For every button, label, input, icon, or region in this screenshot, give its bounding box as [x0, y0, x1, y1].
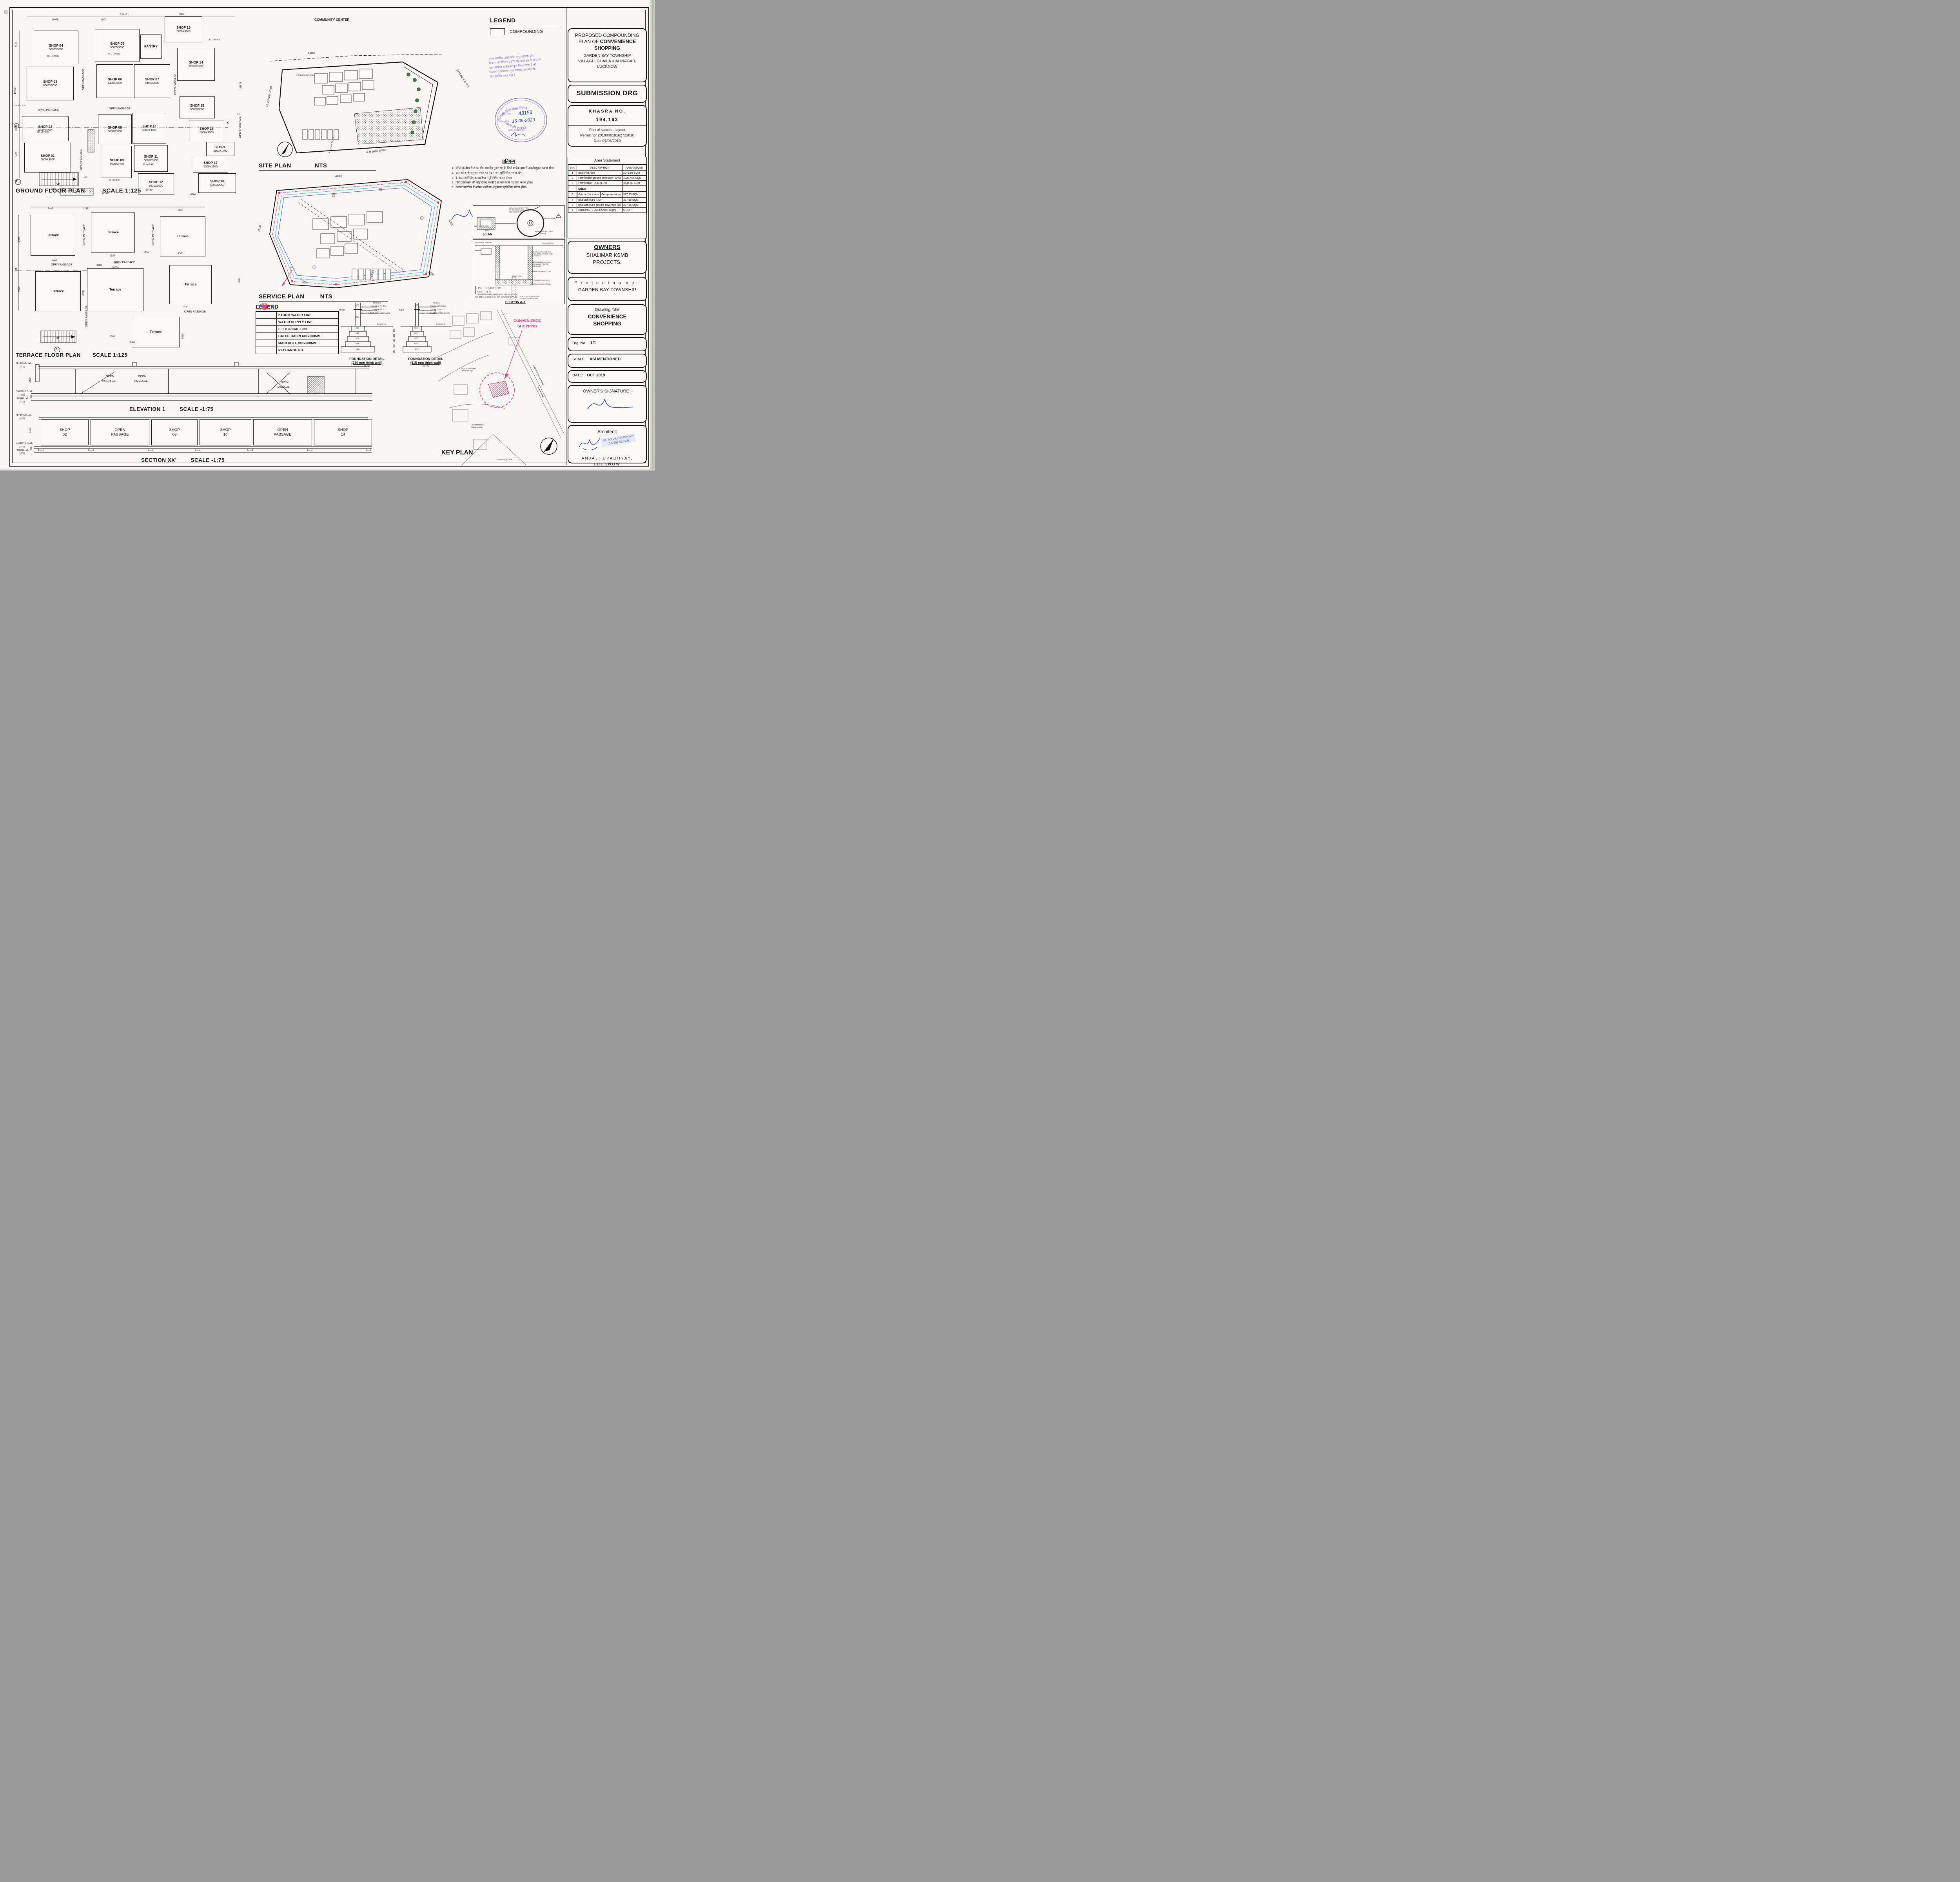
legend-label: ELECTRICAL LINE — [277, 327, 308, 331]
punch-hole — [4, 10, 8, 15]
terrace-geometry — [13, 205, 245, 352]
tb-submission: SUBMISSION DRG — [568, 85, 647, 103]
tb-owner-signature: OWNER'S SIGNATURE : — [568, 385, 647, 423]
plan-name: SITE PLAN — [259, 162, 291, 169]
tb-owners: OWNERS SHALIMAR KSMBPROJECTS. — [568, 241, 647, 274]
plan-name: SERVICE PLAN — [259, 293, 305, 300]
storm-symbol — [256, 312, 277, 318]
tb-khasra: KHASRA NO. 194,193 Part of sanction layo… — [568, 105, 647, 147]
plan-name: SECTION XX' — [141, 457, 176, 463]
scan-edge-bottom — [0, 468, 655, 470]
dia-table: DIAEFF. DEPTH (D)4.5 M.4.5 M. — [475, 286, 502, 294]
section-cell: SHOP14 — [314, 420, 372, 445]
foundation-detail-230: 230D.P.C.230Plinth Lvl.Flooring as Per S… — [339, 302, 394, 377]
section-cells: SHOP02OPENPASSAGESHOP08SHOP10OPENPASSAGE… — [41, 420, 372, 445]
plan-scale: SCALE -1:75 — [191, 457, 225, 463]
elevation-geometry — [16, 361, 380, 405]
tb-area-statement: Area StatementS.N.DESCRIPTIONAREA (SQM)1… — [568, 157, 647, 238]
drawing-sheet: SHOP 045000X3600SHOP 036000X3000SHOP 055… — [0, 0, 655, 470]
area-statement-table: Area StatementS.N.DESCRIPTIONAREA (SQM)1… — [568, 157, 646, 213]
scan-edge — [650, 0, 655, 470]
submission-label: SUBMISSION DRG — [568, 85, 646, 97]
legend-row-rp: RECHARGE PIT — [256, 347, 338, 354]
plan-scale: NTS — [315, 162, 327, 169]
note-item-3: 3.रेनवाटर हार्वेस्टिंग का प्राविधान सुनि… — [452, 176, 566, 180]
foundation-step-dims: 150—150—150—150—150 — [394, 329, 396, 353]
ground-floor-plan-title: GROUND FLOOR PLAN SCALE 1:125 — [16, 187, 141, 194]
titleblock-divider — [566, 7, 566, 465]
water-symbol — [256, 319, 277, 325]
drawing-title-value: CONVENIENCESHOPPING — [568, 313, 646, 327]
section-xx: SHOP02OPENPASSAGESHOP08SHOP10OPENPASSAGE… — [16, 414, 380, 456]
legend-label: RECHARGE PIT — [277, 349, 303, 352]
khasra-value: 194,193 — [568, 117, 646, 122]
legend-row-elec: ELECTRICAL LINE — [256, 325, 338, 332]
area-row: 7PARKING (1.25 ECS/100 SQM)5 UNIT — [568, 208, 646, 213]
area-col-header: DESCRIPTION — [577, 165, 622, 171]
approval-stamp: भवन मानचित्र उत्तर प्रदेश नगर योजना औरवि… — [488, 53, 542, 79]
stamp-permit-label: परमिट संख्या — [501, 113, 511, 115]
plan-scale: SCALE 1:125 — [102, 187, 141, 194]
mh-symbol — [256, 340, 277, 347]
legend-label: MAIN HOLE 900x800MM. — [277, 342, 318, 345]
legend-table: STORM WATER LINEWATER SUPPLY LINEELECTRI… — [256, 311, 339, 354]
restrictions-notes: प्रतिबन्ध 1.शॉप्स के बीच से 2.50 मी0 चकर… — [452, 158, 566, 191]
scale-value: AS/ MENTIONED — [590, 357, 621, 362]
legend-label: COMPOUNDING — [510, 29, 543, 34]
area-row: 1Total Plot Area2076.85 SQM — [568, 171, 646, 176]
stamp-officer: अधिशासी अभियन्ता — [508, 129, 524, 132]
foundation-230-title: FOUNDATION DETAIL (230 mm thick wall) N.… — [339, 357, 394, 368]
cb-symbol — [256, 333, 277, 340]
plan-scale: NTS — [320, 293, 333, 300]
legend-row-water: WATER SUPPLY LINE — [256, 318, 338, 325]
plan-name: TERRACE FLOOR PLAN — [16, 352, 81, 358]
stamp-date-label: स्वीकृत तिथि — [499, 121, 509, 123]
legend-row: COMPOUNDING — [490, 28, 561, 35]
area-row: 4Ground floor areaCompound Area377.15 SQ… — [568, 192, 646, 198]
section-cell: SHOP08 — [151, 420, 198, 445]
tb-architect: Architect: AR. ANJALI UPADHYAYCA/2017/81… — [568, 425, 647, 463]
date-label: DATE: — [572, 373, 583, 378]
scale-label: SCALE: — [572, 357, 586, 362]
area-row: 5Total achieved F.A.R377.15 SQM — [568, 198, 646, 203]
note-item-2: 2.शासनादेश के अनुसार स्थल पर वृक्षारोपण … — [452, 171, 566, 175]
note-item-1: 1.शॉप्स के बीच से 2.50 मी0 चकरोड गुजर रह… — [452, 166, 566, 170]
section-cell: OPENPASSAGE — [91, 420, 149, 445]
plan-name: GROUND FLOOR PLAN — [16, 187, 85, 194]
compounding-swatch — [490, 28, 505, 35]
round-stamp: कार्यालय विकास प्राधिकरण विकास क्षेत्र ल… — [488, 93, 554, 152]
elevation-title: ELEVATION 1 SCALE -1:75 — [129, 406, 214, 412]
legend-row-mh: MAIN HOLE 900x800MM. — [256, 340, 338, 347]
recharge-note-1: ( THE DIMENSION MAY CHANGE AS/ SITE COND… — [475, 294, 517, 296]
legend-row-storm: STORM WATER LINE — [256, 311, 338, 318]
recharge-note-2: ( FOR DETAIL CALCULATION REF. SERVICE DR… — [474, 296, 517, 298]
area-col-header: S.N. — [568, 165, 577, 171]
terrace-plan-title: TERRACE FLOOR PLAN SCALE 1:125 — [16, 352, 127, 358]
project-title: PROPOSED COMPOUNDING PLAN OF CONVENIENCE… — [568, 29, 646, 52]
tb-drawing-title: Drawing Title CONVENIENCESHOPPING — [568, 304, 647, 335]
tb-scale: SCALE: AS/ MENTIONED — [568, 354, 647, 368]
section-title: SECTION XX' SCALE -1:75 — [141, 457, 225, 463]
project-location: GARDEN BAY TOWNSHIP VILLAGE: GHAILA & AL… — [568, 53, 646, 70]
legend-row-cb: CATCH BASIN 600x600MM. — [256, 332, 338, 340]
legend-label: CATCH BASIN 600x600MM. — [277, 334, 321, 338]
area-row: 2Permissible ground coverage (50%)1038.4… — [568, 176, 646, 181]
note-item-5: 5.तलपट मानचित्र में अंकित शर्तों का अनुप… — [452, 185, 566, 189]
area-col-header: AREA (SQM) — [622, 165, 646, 171]
recharge-pit-detail: 100mm DIA C.I VENT PIPETO BE TERMINATED … — [473, 205, 564, 303]
section-cell: OPENPASSAGE — [253, 420, 312, 445]
owners-label: OWNERS — [568, 242, 646, 251]
rp-symbol — [256, 347, 277, 354]
drawing-title-label: Drawing Title — [568, 305, 646, 312]
legend-title: LEGEND — [490, 17, 561, 24]
site-plan-geometry — [256, 15, 491, 162]
plan-scale: SCALE -1:75 — [180, 406, 214, 412]
legend-label: WATER SUPPLY LINE — [277, 320, 312, 324]
ground-floor-plan: SHOP 045000X3600SHOP 036000X3000SHOP 055… — [13, 13, 245, 198]
site-plan: COMMUNITY CENTER528503 M WIDE SET BACK12… — [256, 15, 491, 162]
detail-nts: N.T.S — [339, 365, 394, 368]
project-name-value: GARDEN BAY TOWNSHIP — [568, 288, 646, 292]
detail-subtitle: (230 mm thick wall) — [339, 361, 394, 365]
owner-signature — [576, 394, 639, 414]
service-plan-title: SERVICE PLAN NTS — [259, 293, 388, 302]
drg-no-label: Drg. No. — [572, 341, 586, 345]
tb-project-title: PROPOSED COMPOUNDING PLAN OF CONVENIENCE… — [568, 28, 647, 82]
area-statement-title: Area Statement — [568, 157, 646, 164]
date-value: OCT 2019 — [587, 373, 605, 378]
project-name-label: P r o j e c t n a m e : — [568, 278, 646, 285]
stamp-signature — [511, 133, 524, 136]
area-table: S.N.DESCRIPTIONAREA (SQM)1Total Plot Are… — [568, 164, 646, 213]
section-cell: SHOP02 — [41, 420, 89, 445]
elec-symbol — [256, 326, 277, 332]
detail-title: FOUNDATION DETAIL — [339, 357, 394, 361]
notes-title: प्रतिबन्ध — [452, 158, 566, 164]
recharge-plan-geometry — [473, 206, 564, 238]
foundation-230-geometry — [339, 302, 394, 355]
recharge-section-box: REMOVABLE GRATINGGROUND LVL.OVER FLOW PI… — [473, 239, 565, 304]
tb-date: DATE: OCT 2019 — [568, 370, 647, 383]
legend-label: STORM WATER LINE — [277, 313, 312, 317]
dia-depth-table: DIAEFF. DEPTH (D)4.5 M.4.5 M. — [475, 286, 502, 294]
drg-no-value: 1/1 — [590, 341, 596, 345]
ground-floor-geometry — [13, 13, 245, 198]
terrace-floor-plan: TerraceTerraceTerraceTerraceTerraceTerra… — [13, 205, 245, 352]
plan-scale: SCALE 1:125 — [93, 352, 128, 358]
area-row: 6Total achieved ground coverage (18.15%)… — [568, 203, 646, 208]
recharge-plan-box: 100mm DIA C.I VENT PIPETO BE TERMINATED … — [473, 205, 565, 238]
owner-signature-label: OWNER'S SIGNATURE : — [568, 386, 646, 394]
architect-name: ANJALI UPADHYAY,LUCKNOW — [568, 456, 646, 467]
section-cell: SHOP10 — [200, 420, 251, 445]
area-row: AREA — [568, 186, 646, 192]
note-item-4: 4.यदि प्राधिकरण की कोई देयता बनती है तो … — [452, 181, 566, 185]
site-plan-title: SITE PLAN NTS — [259, 162, 376, 171]
area-row: 3Permissible F.A.R.(1.75)3634.48 SQM — [568, 181, 646, 186]
stamp-included: शामिल — [513, 108, 518, 111]
elevation-1: TERRACE LVL.(+600)GROUND F.LVL(+600)ROAD… — [16, 361, 380, 405]
key-plan: CONVENIENCESHOPPINGGROUP HOUSING16557.09… — [438, 310, 564, 465]
key-plan-geometry — [438, 310, 564, 465]
owners-name: SHALIMAR KSMBPROJECTS. — [568, 252, 646, 265]
notes-list: 1.शॉप्स के बीच से 2.50 मी0 चकरोड गुजर रह… — [452, 166, 566, 189]
service-legend: LEGEND STORM WATER LINEWATER SUPPLY LINE… — [256, 303, 339, 354]
compounding-legend: LEGEND COMPOUNDING — [490, 17, 561, 35]
tb-drg-no: Drg. No. 1/1 — [568, 337, 647, 351]
tb-project-name: P r o j e c t n a m e : GARDEN BAY TOWNS… — [568, 277, 647, 301]
sanction-info: Part of sanction layout Permit no: 20180… — [568, 126, 646, 144]
khasra-label: KHASRA NO. — [568, 106, 646, 114]
plan-name: ELEVATION 1 — [129, 406, 165, 412]
